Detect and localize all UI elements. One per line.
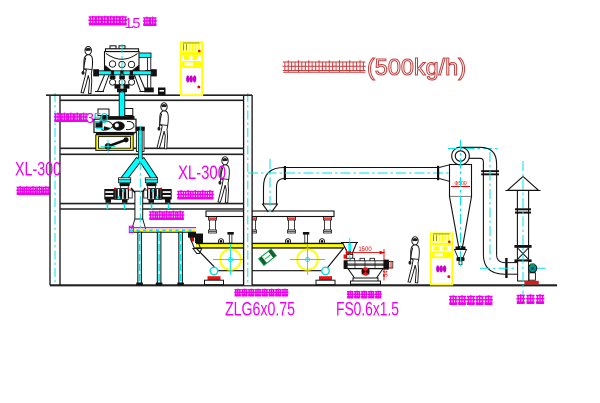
svg-text:50: 50 bbox=[94, 111, 109, 127]
svg-text:ZLG6x0.75: ZLG6x0.75 bbox=[225, 300, 295, 321]
svg-text:XL-300: XL-300 bbox=[178, 163, 226, 184]
svg-text:(500kg/h): (500kg/h) bbox=[367, 54, 466, 80]
svg-text:1500: 1500 bbox=[358, 247, 372, 253]
svg-text:FS0.6x1.5: FS0.6x1.5 bbox=[336, 300, 399, 321]
svg-text:1.5: 1.5 bbox=[125, 16, 141, 32]
svg-text:XL-300: XL-300 bbox=[15, 160, 61, 181]
